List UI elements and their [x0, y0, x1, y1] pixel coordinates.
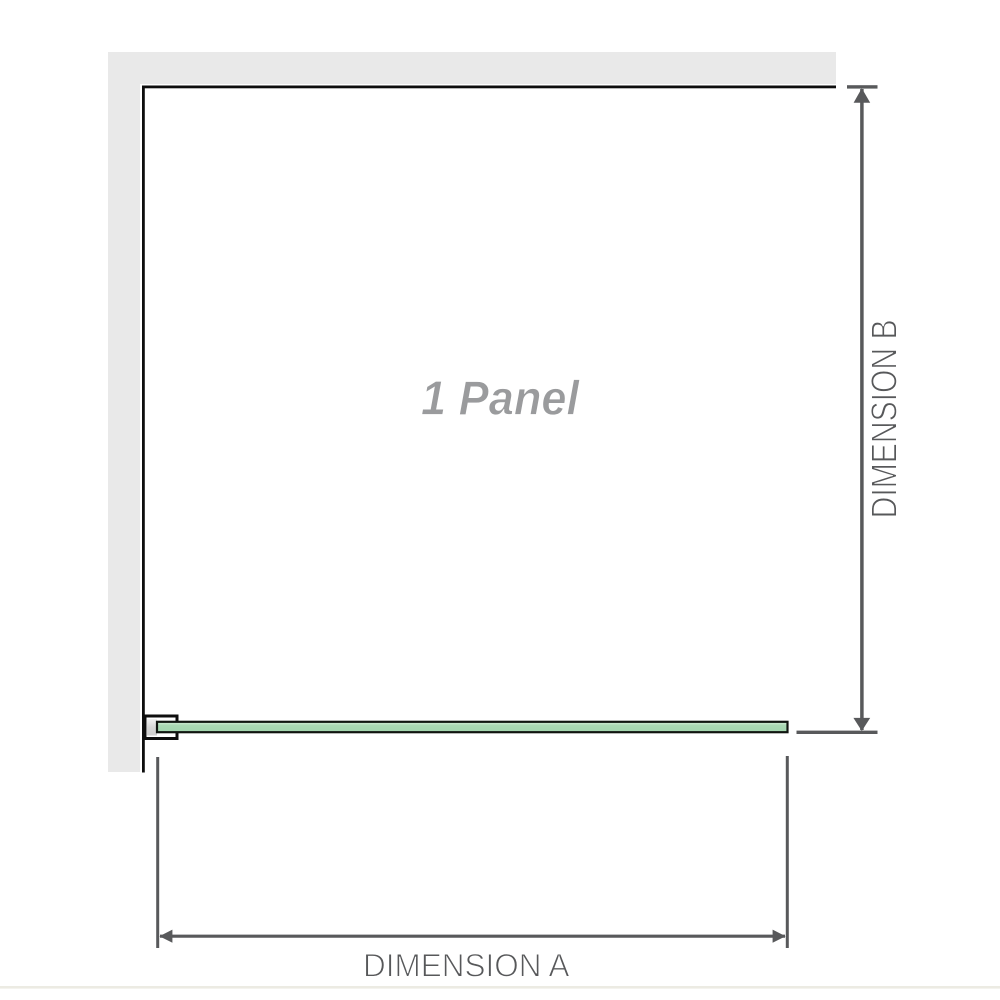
svg-text:DIMENSION A: DIMENSION A: [363, 948, 570, 984]
svg-text:1 Panel: 1 Panel: [421, 372, 581, 425]
svg-text:DIMENSION B: DIMENSION B: [863, 319, 904, 518]
